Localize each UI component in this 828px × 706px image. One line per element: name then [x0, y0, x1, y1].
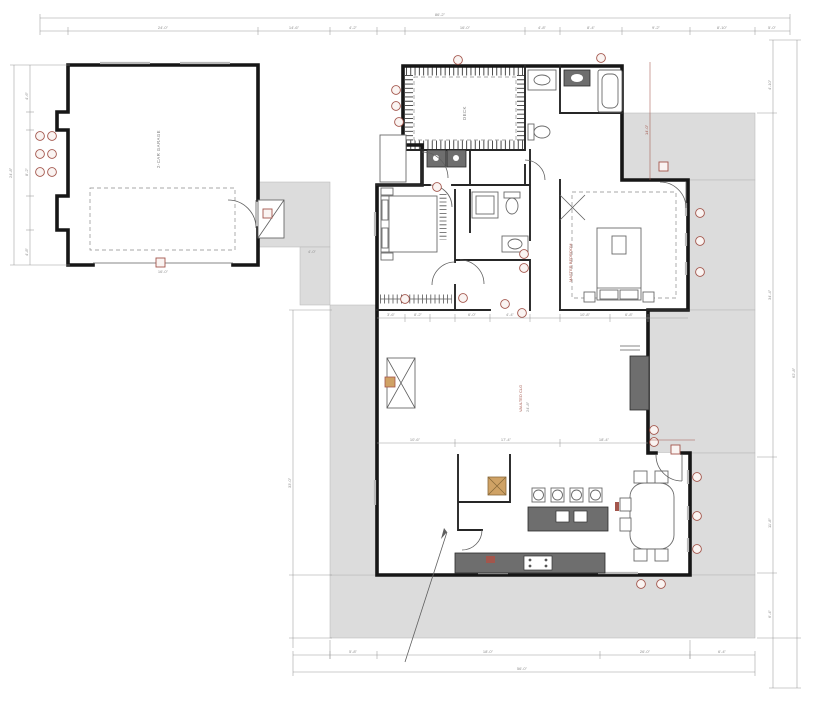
floor-plan-page: 2-CAR GARAGE DECK — [0, 0, 828, 706]
svg-text:6'-0": 6'-0" — [468, 312, 477, 317]
garage-label: 2-CAR GARAGE — [156, 130, 161, 168]
counter-sink-tag — [486, 556, 495, 563]
svg-text:4'-6": 4'-6" — [24, 91, 29, 100]
media-cabinet — [630, 356, 649, 410]
dim-top-overall: 86'-2" — [435, 12, 446, 17]
svg-text:18'-4": 18'-4" — [599, 437, 610, 442]
svg-text:14'-0": 14'-0" — [644, 124, 649, 135]
deck-label: DECK — [462, 106, 467, 120]
table-accent — [615, 502, 619, 511]
svg-text:8'-10": 8'-10" — [717, 25, 728, 30]
walkway-column — [300, 247, 330, 305]
svg-text:4'-4": 4'-4" — [506, 312, 515, 317]
svg-text:24'-0": 24'-0" — [158, 25, 169, 30]
toilet-tank — [528, 124, 534, 140]
svg-text:4'-8": 4'-8" — [538, 25, 547, 30]
island-sink — [556, 511, 569, 522]
svg-text:34'-4": 34'-4" — [767, 289, 772, 300]
island-sink2 — [574, 511, 587, 522]
nightstand — [381, 188, 393, 195]
svg-text:3'-6": 3'-6" — [387, 312, 396, 317]
nightstand — [643, 292, 654, 302]
svg-text:24'-8": 24'-8" — [8, 167, 13, 178]
svg-text:4'-2": 4'-2" — [349, 25, 358, 30]
svg-text:11'-8": 11'-8" — [767, 518, 772, 528]
bay-window-tag — [385, 377, 395, 387]
svg-text:4'-8": 4'-8" — [24, 247, 29, 256]
nightstand — [584, 292, 595, 302]
svg-text:4'-0": 4'-0" — [308, 249, 317, 254]
bed-throw — [612, 236, 626, 254]
great-room-dim: 24'-8" — [525, 401, 530, 412]
nightstand — [381, 253, 393, 260]
svg-text:18'-0": 18'-0" — [483, 649, 494, 654]
master-label: MASTER BEDROOM — [568, 244, 573, 282]
svg-text:17'-4": 17'-4" — [501, 437, 512, 442]
toilet-symbol — [506, 198, 518, 214]
deck-south — [330, 575, 755, 638]
svg-text:6'-8": 6'-8" — [625, 312, 634, 317]
svg-text:9'-2": 9'-2" — [652, 25, 661, 30]
svg-text:4'-10": 4'-10" — [767, 79, 772, 90]
svg-text:26'-0": 26'-0" — [640, 649, 651, 654]
range-symbol — [524, 556, 552, 570]
top-ticks — [40, 14, 790, 35]
svg-text:8'-2": 8'-2" — [414, 312, 423, 317]
garage: 2-CAR GARAGE — [57, 65, 284, 265]
svg-text:6'-4": 6'-4" — [767, 609, 772, 618]
great-room-label: VAULTED CLG — [518, 385, 523, 412]
svg-text:6'-4": 6'-4" — [718, 649, 727, 654]
dim-bottom-overall: 56'-0" — [517, 666, 528, 671]
dim-right-overall: 62'-8" — [791, 367, 796, 378]
svg-text:10'-8": 10'-8" — [580, 312, 591, 317]
svg-text:33'-0": 33'-0" — [287, 477, 292, 488]
deck-north-east — [622, 113, 755, 180]
svg-text:16'-0": 16'-0" — [460, 25, 471, 30]
svg-text:14'-6": 14'-6" — [289, 25, 300, 30]
deck-west — [330, 305, 377, 575]
deck-east-great — [648, 310, 755, 453]
svg-text:5'-8": 5'-8" — [349, 649, 358, 654]
floor-plan-drawing: 2-CAR GARAGE DECK — [0, 0, 828, 706]
svg-text:8'-2": 8'-2" — [24, 167, 29, 176]
toilet-tank — [504, 192, 520, 198]
dining-table — [630, 483, 674, 549]
entry-stoop — [380, 135, 406, 182]
svg-text:5'-0": 5'-0" — [768, 25, 777, 30]
toilet-symbol — [534, 126, 550, 138]
garage-door-dim: 16'-0" — [158, 269, 169, 274]
svg-text:8'-4": 8'-4" — [587, 25, 596, 30]
svg-text:10'-6": 10'-6" — [410, 437, 421, 442]
garage-floor — [68, 65, 258, 265]
